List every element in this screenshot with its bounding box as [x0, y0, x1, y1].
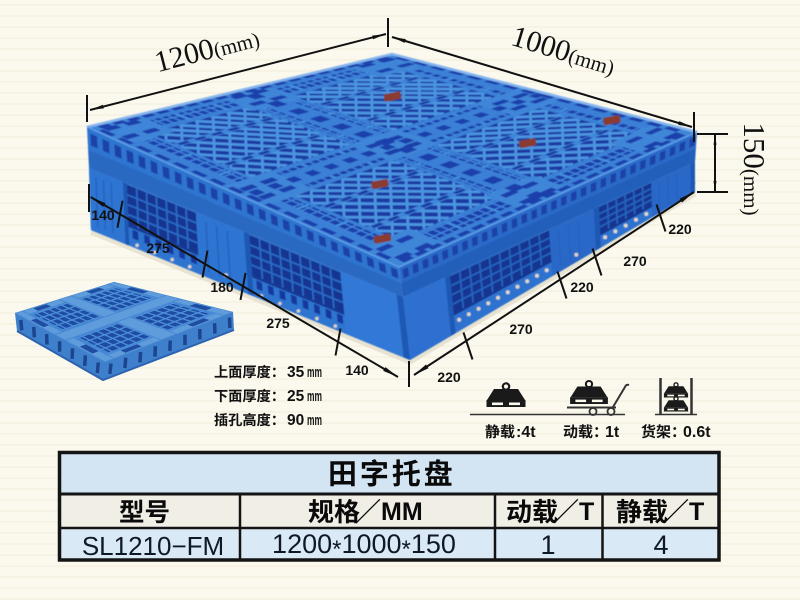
svg-text:0.6t: 0.6t	[683, 424, 711, 441]
svg-text::4t: :4t	[516, 424, 536, 441]
svg-text:90: 90	[287, 412, 304, 429]
svg-text:35: 35	[287, 364, 305, 381]
svg-text:275: 275	[146, 240, 170, 256]
svg-text:1t: 1t	[605, 424, 620, 441]
svg-text:270: 270	[509, 321, 533, 337]
svg-text:mm: mm	[307, 365, 322, 381]
svg-text:275: 275	[266, 315, 290, 331]
svg-text:25: 25	[287, 388, 305, 405]
svg-text:220: 220	[570, 279, 594, 295]
svg-text:mm: mm	[307, 389, 322, 405]
svg-text:140: 140	[91, 207, 115, 223]
svg-text:T: T	[579, 498, 594, 526]
svg-text:mm: mm	[307, 413, 322, 429]
svg-text:220: 220	[668, 221, 692, 237]
svg-text:180: 180	[210, 279, 234, 295]
svg-text:1200*1000*150: 1200*1000*150	[272, 529, 456, 563]
svg-text:270: 270	[623, 253, 647, 269]
svg-text:T: T	[689, 498, 704, 526]
svg-text:1: 1	[540, 530, 555, 560]
svg-text:4: 4	[653, 530, 668, 560]
svg-text:140: 140	[345, 362, 369, 378]
svg-text:220: 220	[437, 369, 461, 385]
svg-text:MM: MM	[381, 498, 423, 526]
svg-text:SL1210−FM: SL1210−FM	[82, 531, 224, 561]
